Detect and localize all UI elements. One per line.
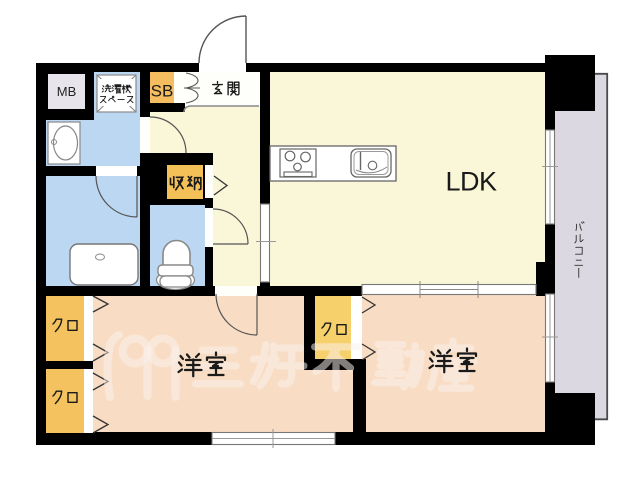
svg-text:LDK: LDK bbox=[445, 167, 497, 197]
svg-text:SB: SB bbox=[151, 82, 174, 101]
svg-text:MB: MB bbox=[57, 84, 77, 99]
